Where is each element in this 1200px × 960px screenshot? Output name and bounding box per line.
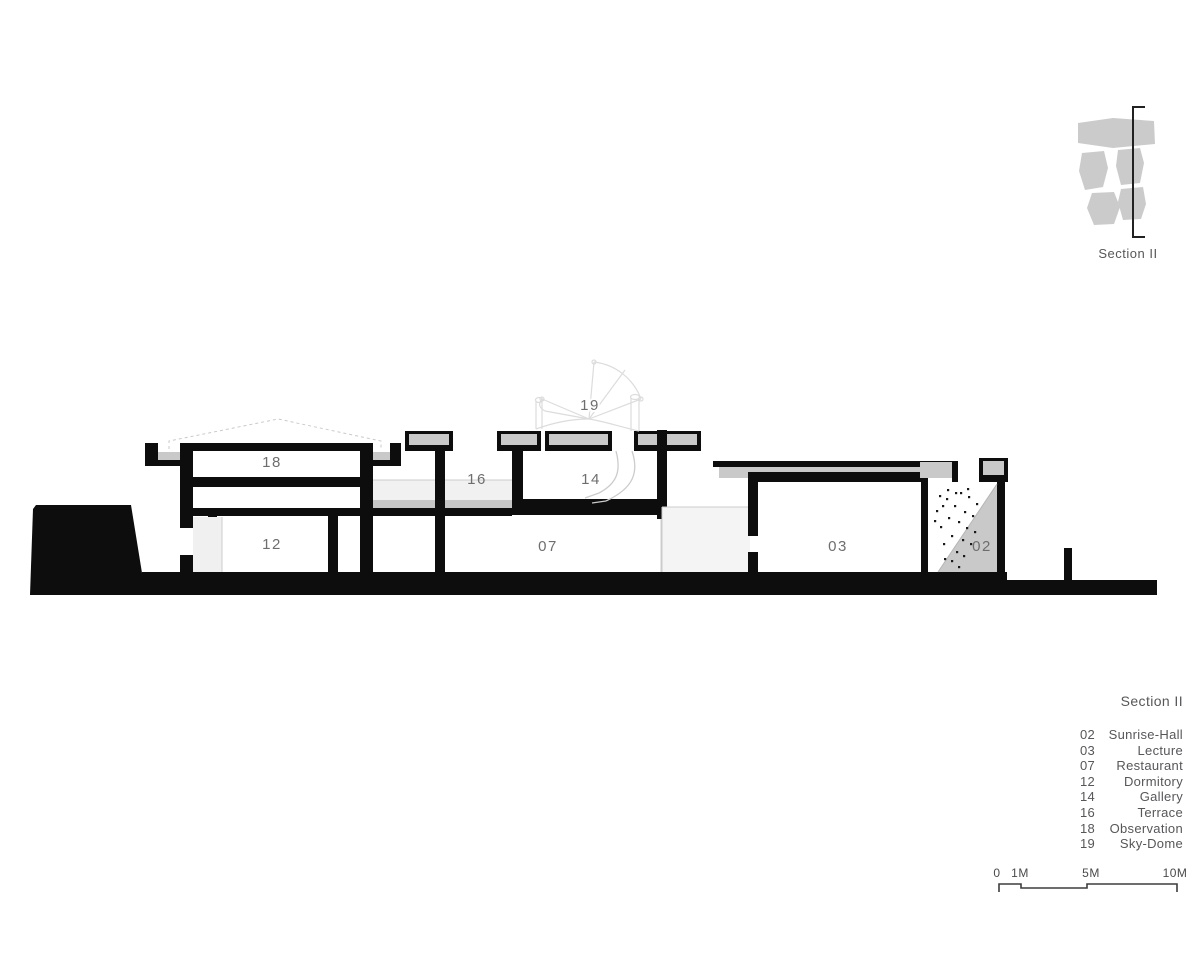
right-wall	[997, 482, 1005, 572]
legend-row: 16 Terrace	[1060, 805, 1183, 821]
legend: Section II 02 Sunrise-Hall 03 Lecture 07…	[1060, 693, 1183, 852]
left-wall-upper	[748, 482, 758, 536]
legend-room-number: 14	[1060, 789, 1095, 805]
legend-row: 19 Sky-Dome	[1060, 836, 1183, 852]
legend-room-name: Sunrise-Hall	[1095, 727, 1183, 743]
architectural-sheet: 18 12 16 14 19 07 03 02 Section II 0 1M …	[0, 0, 1200, 960]
key-plan-block	[1116, 148, 1144, 185]
room-label-dormitory: 12	[262, 536, 282, 553]
roof-slab	[180, 443, 373, 451]
scale-tick-10m: 10M	[1163, 866, 1188, 880]
base-slab-right	[1005, 580, 1157, 595]
left-wall-lower	[180, 555, 193, 573]
room-label-sunrise-hall: 02	[972, 538, 992, 555]
legend-room-name: Observation	[1095, 821, 1183, 837]
floor-slab-1	[180, 477, 373, 487]
courtyard	[662, 507, 750, 572]
legend-room-name: Sky-Dome	[1095, 836, 1183, 852]
key-plan-block	[1079, 151, 1108, 190]
wall-terrace-left	[435, 447, 445, 572]
key-plan: Section II	[1078, 107, 1158, 261]
scale-tick-1m: 1M	[1011, 866, 1029, 880]
legend-room-name: Restaurant	[1095, 758, 1183, 774]
left-wall-lower	[748, 552, 758, 572]
scale-tick-5m: 5M	[1082, 866, 1100, 880]
right-wall	[921, 482, 928, 572]
right-parapet	[390, 443, 401, 466]
room-label-gallery: 14	[581, 471, 601, 488]
roof-slab-thin	[713, 461, 953, 467]
inner-wall	[328, 516, 338, 573]
section-drawing: 18 12 16 14 19 07 03 02 Section II 0 1M …	[0, 0, 1200, 960]
room-label-restaurant: 07	[538, 538, 558, 555]
skylight-mullion	[952, 461, 958, 482]
scale-bar-line	[999, 884, 1177, 892]
legend-row: 14 Gallery	[1060, 789, 1183, 805]
vestibule	[193, 517, 222, 572]
sky-dome-mechanism	[536, 360, 644, 431]
legend-room-number: 07	[1060, 758, 1095, 774]
key-plan-block	[1087, 192, 1120, 225]
room-label-lecture: 03	[828, 538, 848, 555]
legend-room-number: 16	[1060, 805, 1095, 821]
building-lecture	[713, 461, 953, 572]
scale-bar: 0 1M 5M 10M	[993, 866, 1187, 892]
legend-room-name: Lecture	[1095, 743, 1183, 759]
legend-room-number: 12	[1060, 774, 1095, 790]
legend-room-name: Dormitory	[1095, 774, 1183, 790]
legend-room-number: 18	[1060, 821, 1095, 837]
gallery-floor-slab	[512, 499, 667, 515]
right-wall	[360, 443, 373, 573]
legend-room-number: 02	[1060, 727, 1095, 743]
key-plan-block	[1078, 118, 1155, 148]
legend-room-number: 19	[1060, 836, 1095, 852]
key-plan-caption: Section II	[1098, 246, 1157, 261]
legend-row: 18 Observation	[1060, 821, 1183, 837]
legend-room-name: Gallery	[1095, 789, 1183, 805]
legend-room-name: Terrace	[1095, 805, 1183, 821]
legend-rows: 02 Sunrise-Hall 03 Lecture 07 Restaurant…	[1060, 727, 1183, 852]
ceiling-slab	[748, 472, 928, 482]
room-label-sky-dome: 19	[580, 397, 600, 414]
roof-gray-block	[920, 462, 952, 478]
legend-row: 03 Lecture	[1060, 743, 1183, 759]
base-post	[1064, 548, 1072, 582]
legend-room-number: 03	[1060, 743, 1095, 759]
room-label-terrace: 16	[467, 471, 487, 488]
left-balcony-deck	[158, 452, 183, 460]
left-parapet	[145, 443, 158, 466]
legend-row: 07 Restaurant	[1060, 758, 1183, 774]
scale-tick-0: 0	[993, 866, 1000, 880]
wall-terrace-gallery	[512, 447, 523, 500]
legend-row: 02 Sunrise-Hall	[1060, 727, 1183, 743]
legend-title: Section II	[1060, 693, 1183, 709]
room-label-observation: 18	[262, 454, 282, 471]
left-wall-upper	[180, 443, 193, 528]
ground-berm	[30, 505, 142, 595]
roof-skylight-boxes	[405, 431, 701, 451]
floor-slab-2	[180, 508, 373, 516]
room-sunrise-hall	[920, 458, 1008, 572]
base-slab	[142, 572, 1007, 595]
legend-row: 12 Dormitory	[1060, 774, 1183, 790]
